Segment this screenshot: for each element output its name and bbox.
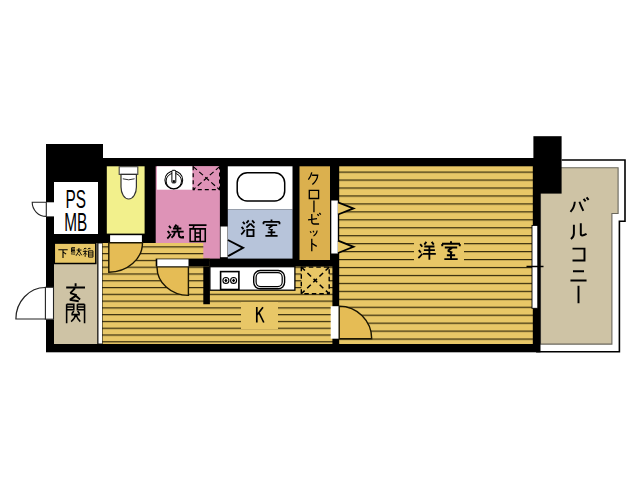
- svg-text:MB: MB: [64, 208, 87, 236]
